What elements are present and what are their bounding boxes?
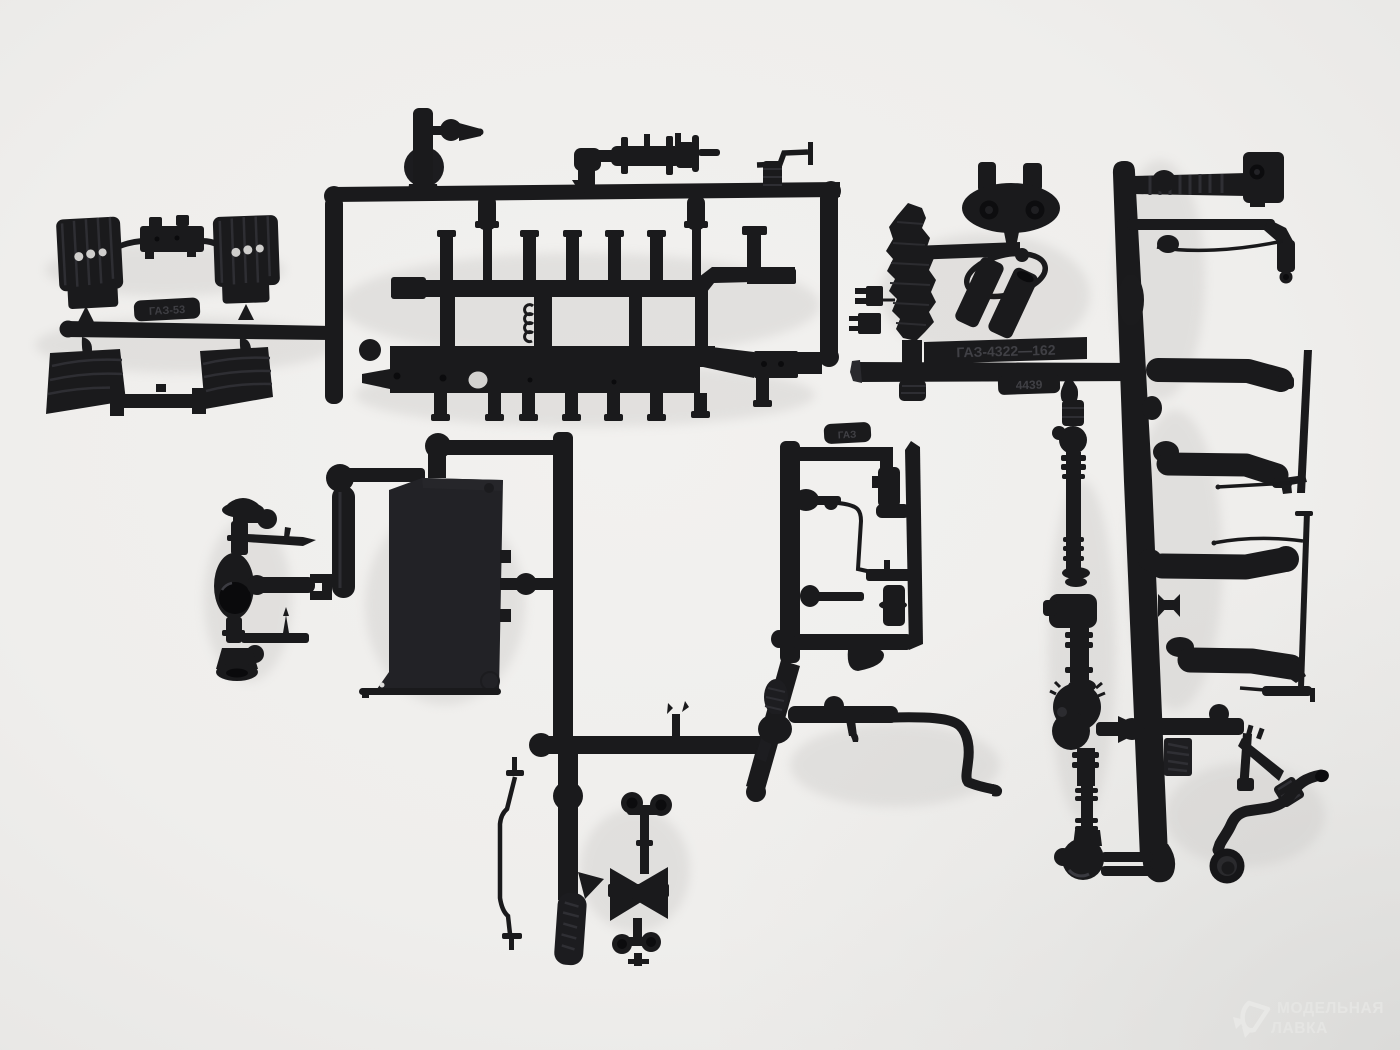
svg-text:ГАЗ-4322—162: ГАЗ-4322—162 — [956, 342, 1056, 361]
svg-text:ГАЗ: ГАЗ — [838, 430, 857, 442]
svg-text:4439: 4439 — [1015, 377, 1042, 392]
svg-text:ЛАВКА: ЛАВКА — [1271, 1020, 1328, 1037]
svg-text:МОДЕЛЬНАЯ: МОДЕЛЬНАЯ — [1277, 1000, 1384, 1017]
svg-text:ГАЗ-53: ГАЗ-53 — [149, 304, 186, 318]
